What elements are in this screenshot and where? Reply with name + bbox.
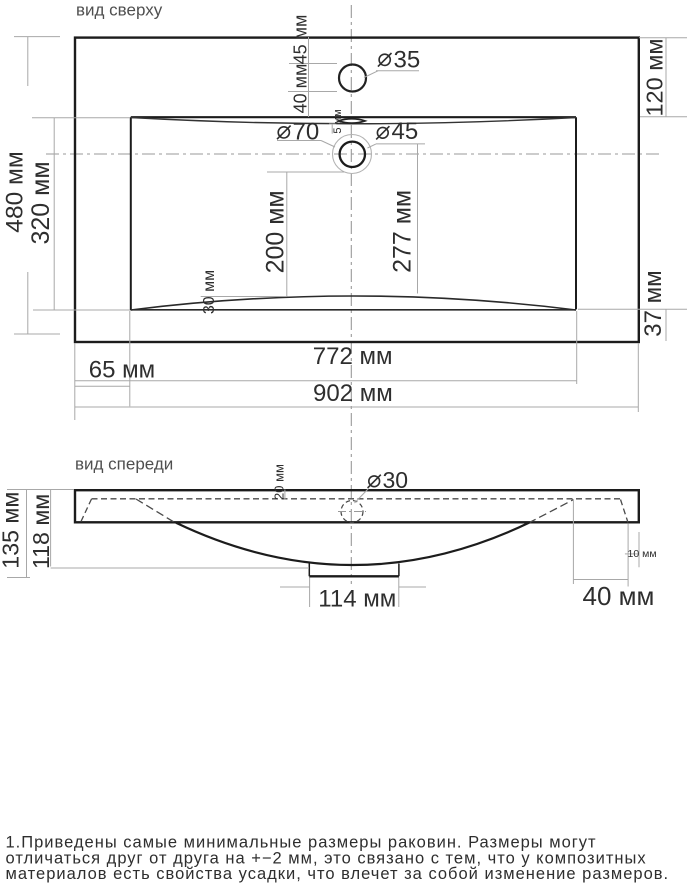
svg-text:200 мм: 200 мм <box>261 190 289 273</box>
svg-text:45: 45 <box>392 118 419 145</box>
svg-text:вид спереди: вид спереди <box>75 455 173 474</box>
svg-text:902 мм: 902 мм <box>313 380 393 407</box>
svg-text:45 мм: 45 мм <box>291 15 311 65</box>
svg-text:114 мм: 114 мм <box>318 586 396 613</box>
svg-text:135 мм: 135 мм <box>0 492 23 569</box>
svg-text:40 мм: 40 мм <box>291 64 311 114</box>
svg-text:277 мм: 277 мм <box>389 190 417 273</box>
svg-text:118 мм: 118 мм <box>28 494 54 569</box>
svg-text:120 мм: 120 мм <box>642 38 668 116</box>
svg-text:65 мм: 65 мм <box>89 356 155 383</box>
svg-text:320 мм: 320 мм <box>27 161 55 244</box>
svg-text:70: 70 <box>293 119 320 146</box>
svg-text:20 мм: 20 мм <box>272 464 287 500</box>
svg-text:37 мм: 37 мм <box>640 270 667 336</box>
svg-text:480 мм: 480 мм <box>2 151 29 232</box>
svg-text:772 мм: 772 мм <box>313 343 393 370</box>
svg-text:30: 30 <box>383 467 409 493</box>
svg-text:35: 35 <box>394 46 421 73</box>
svg-text:вид сверху: вид сверху <box>76 1 163 20</box>
svg-text:30 мм: 30 мм <box>201 270 218 314</box>
svg-text:40 мм: 40 мм <box>583 581 655 611</box>
svg-text:10 мм: 10 мм <box>628 548 657 560</box>
svg-text:материалов есть свойства усадк: материалов есть свойства усадки, что вле… <box>6 865 670 883</box>
svg-text:5 мм: 5 мм <box>332 109 344 133</box>
